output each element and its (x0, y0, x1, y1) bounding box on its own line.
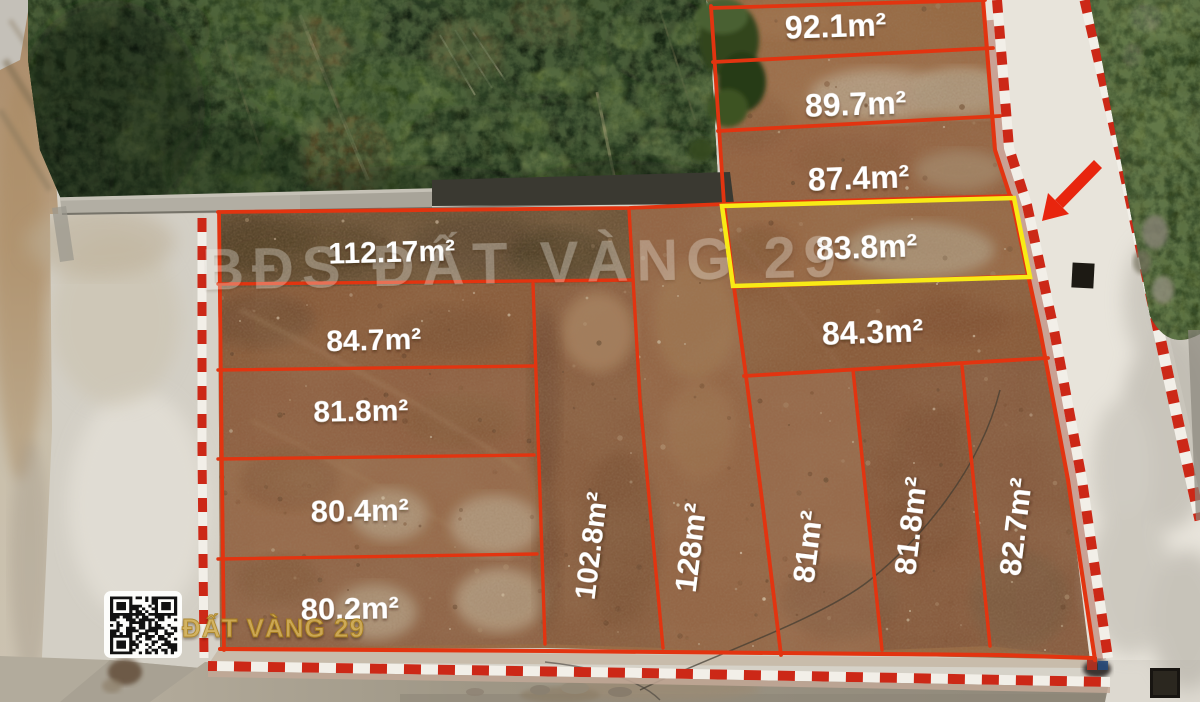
svg-text:87.4m²: 87.4m² (807, 158, 910, 198)
svg-text:80.4m²: 80.4m² (310, 492, 409, 529)
svg-text:84.3m²: 84.3m² (821, 312, 924, 352)
svg-text:92.1m²: 92.1m² (784, 6, 887, 46)
svg-text:BĐS ĐẤT VÀNG 29: BĐS ĐẤT VÀNG 29 (201, 224, 844, 302)
svg-text:ĐẤT VÀNG 29: ĐẤT VÀNG 29 (182, 613, 365, 643)
svg-text:81.8m²: 81.8m² (313, 394, 409, 429)
svg-text:84.7m²: 84.7m² (326, 323, 422, 358)
svg-text:89.7m²: 89.7m² (804, 84, 907, 124)
